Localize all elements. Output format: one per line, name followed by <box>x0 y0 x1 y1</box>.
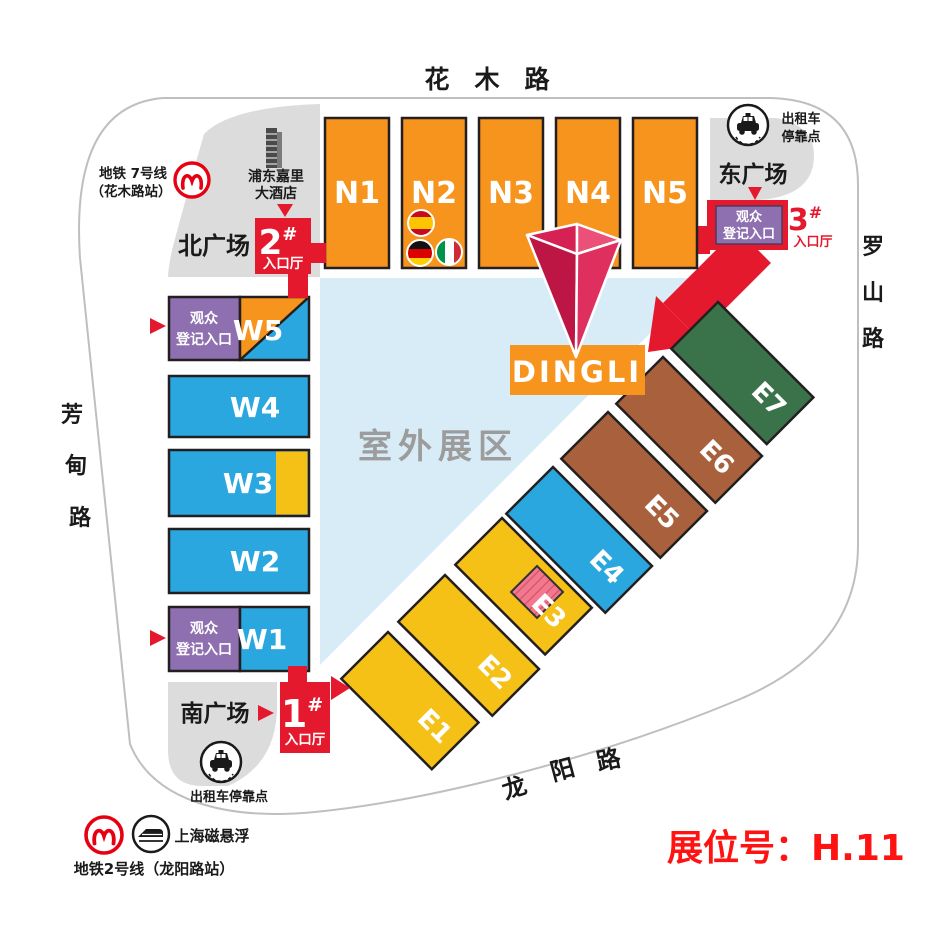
taxi-south-label: 出租车停靠点 <box>190 789 268 805</box>
road-right-char1: 罗 <box>862 235 884 260</box>
metro7-station: 地铁 7号线 （花木路站） <box>91 163 210 200</box>
maglev-label: 上海磁悬浮 <box>174 827 249 845</box>
road-right-label: 罗 山 路 <box>862 235 885 352</box>
hall-n4-label: N4 <box>565 176 611 211</box>
east-plaza-label: 东广场 <box>719 161 788 188</box>
hotel-building-icon <box>266 128 282 168</box>
registration-w1-line1: 观众 <box>190 620 218 637</box>
map-canvas: 室外展区 N1 N2 N3 N4 N5 <box>0 0 946 946</box>
outdoor-area-label: 室外展区 <box>358 427 518 467</box>
road-bottom-char1: 龙 <box>499 771 530 805</box>
hall-w4-label: W4 <box>230 391 280 424</box>
hall-n5-label: N5 <box>642 176 688 211</box>
hall-w1-label: W1 <box>237 623 287 656</box>
hotel-name-line2: 大酒店 <box>255 185 297 202</box>
metro2-maglev: 上海磁悬浮 地铁2号线（龙阳路站） <box>74 816 250 878</box>
registration-e3-line2: 登记入口 <box>722 226 775 242</box>
road-left-char2: 甸 <box>64 453 87 479</box>
registration-w5-line2: 登记入口 <box>175 331 232 348</box>
entrance2-hash: # <box>282 224 297 245</box>
entrance2-hall-label: 入口厅 <box>263 256 304 272</box>
hall-w3-label: W3 <box>223 467 273 500</box>
metro2-label: 地铁2号线（龙阳路站） <box>74 860 234 878</box>
booth-number: 展位号：H.11 <box>667 828 905 869</box>
metro7-line1: 地铁 7号线 <box>99 165 168 182</box>
registration-w1-line2: 登记入口 <box>175 641 232 658</box>
registration-w5-line1: 观众 <box>190 310 218 327</box>
road-right-char2: 山 <box>862 281 884 306</box>
exhibition-map: 室外展区 N1 N2 N3 N4 N5 <box>0 0 946 946</box>
hall-w3-yellow <box>276 452 308 515</box>
entrance1-num: 1 <box>281 692 307 736</box>
hall-n3-label: N3 <box>488 176 534 211</box>
maglev-train-icon <box>133 816 169 852</box>
metro-logo-icon <box>86 817 122 853</box>
dingli-logo-text: DINGLI <box>512 355 642 389</box>
taxi-east-line2: 停靠点 <box>781 129 820 145</box>
germany-flag <box>407 240 433 267</box>
taxi-east-line1: 出租车 <box>781 111 820 127</box>
entrance3-hall-label: 入口厅 <box>793 235 832 250</box>
spain-flag <box>408 210 434 236</box>
hall-n1-label: N1 <box>334 176 380 211</box>
taxi-icon <box>201 742 241 782</box>
hall-w2-label: W2 <box>230 545 280 578</box>
booth-number-value: H.11 <box>811 828 905 869</box>
road-left-char1: 芳 <box>61 403 83 428</box>
hall-w5-label: W5 <box>233 314 283 347</box>
road-left-label: 芳 甸 路 <box>61 403 92 531</box>
hall-n2-label: N2 <box>411 176 457 211</box>
road-bottom-char3: 路 <box>594 744 624 777</box>
booth-number-label: 展位号： <box>667 828 811 869</box>
registration-e3-line1: 观众 <box>736 209 762 225</box>
hotel-name-line1: 浦东嘉里 <box>248 168 304 185</box>
italy-flag <box>436 239 463 265</box>
metro7-line2: （花木路站） <box>91 183 172 200</box>
north-plaza-label: 北广场 <box>178 232 250 260</box>
entrance1-hall-label: 入口厅 <box>285 732 326 748</box>
metro-logo-icon <box>175 163 209 197</box>
road-top-label: 花 木 路 <box>424 65 550 94</box>
south-plaza-label: 南广场 <box>181 700 250 727</box>
registration-box-w5 <box>169 297 240 360</box>
entrance1-hash: # <box>307 694 323 716</box>
taxi-icon <box>728 105 768 145</box>
entrance3-num: 3 <box>788 203 809 238</box>
road-right-char3: 路 <box>862 326 885 352</box>
entrance3-hash: # <box>809 203 822 222</box>
registration-box-w1 <box>169 607 240 671</box>
road-left-char3: 路 <box>69 505 92 531</box>
